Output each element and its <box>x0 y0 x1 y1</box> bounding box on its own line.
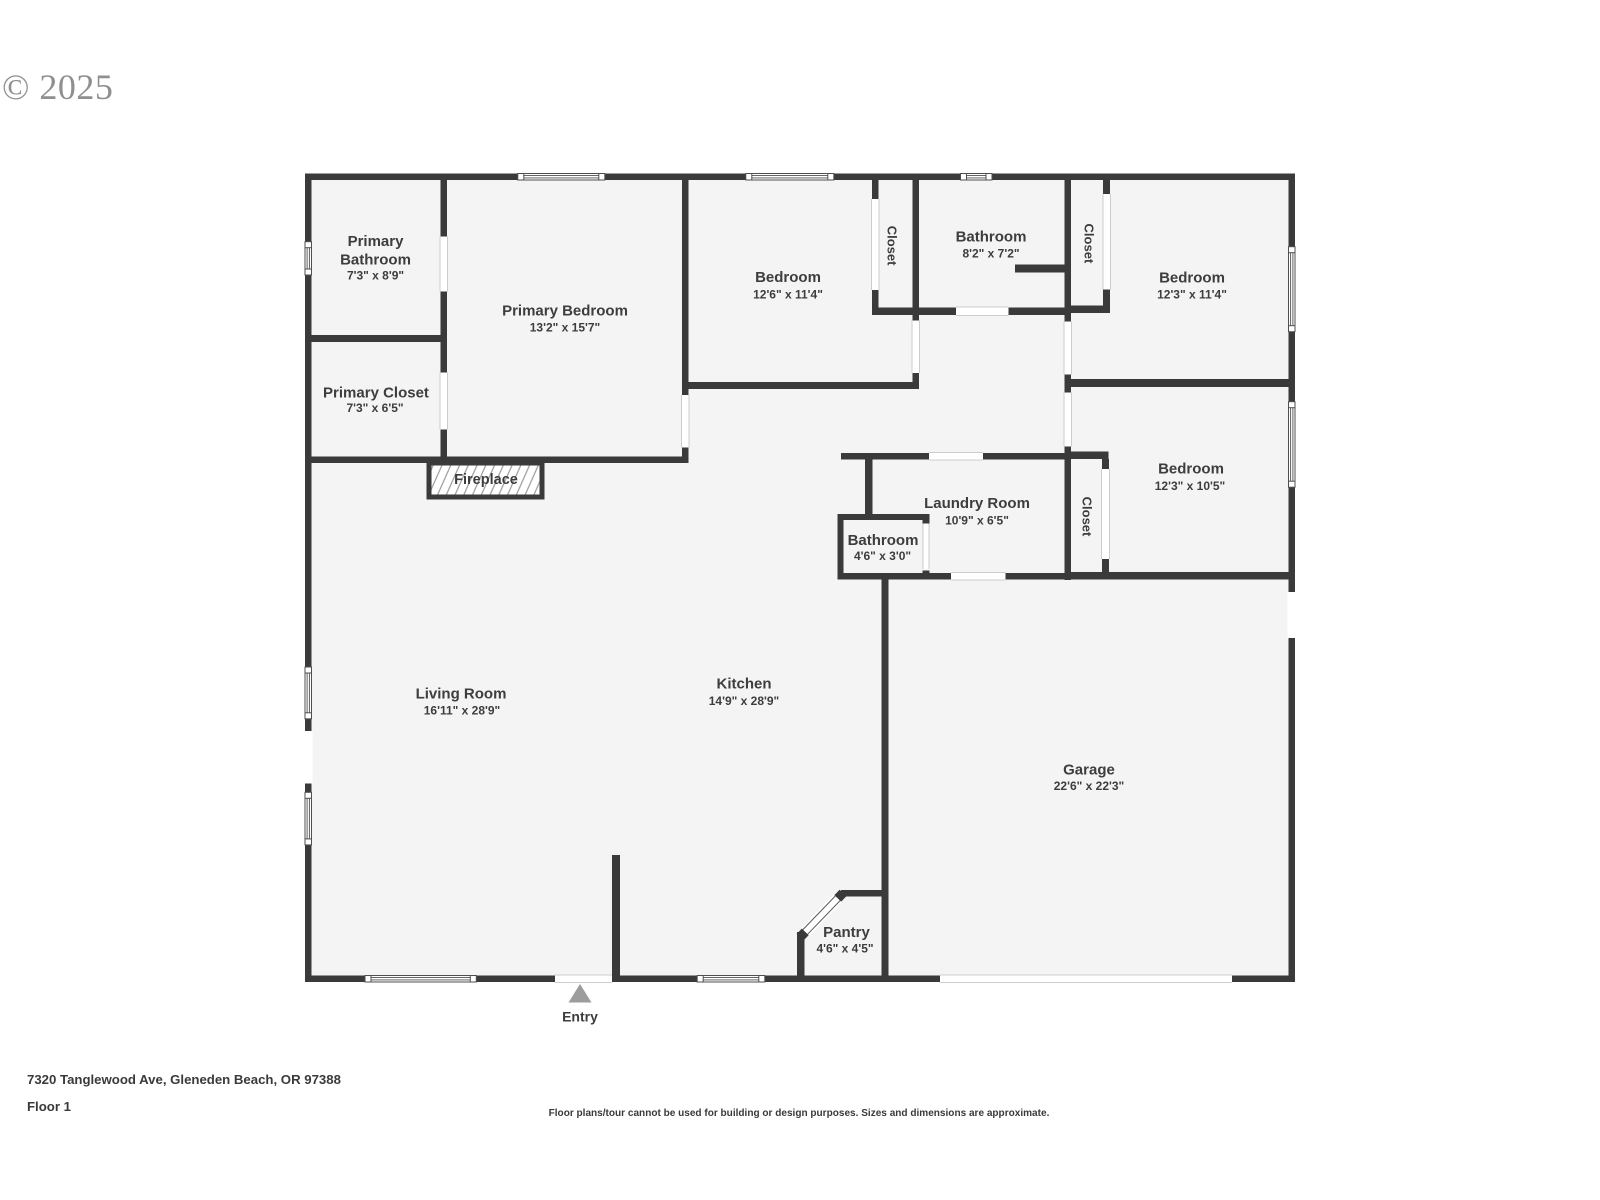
svg-text:22'6" x 22'3": 22'6" x 22'3" <box>1054 779 1124 793</box>
svg-text:Closet: Closet <box>1080 497 1095 537</box>
svg-text:Pantry: Pantry <box>823 924 870 941</box>
svg-text:Garage: Garage <box>1063 762 1115 779</box>
svg-text:Bathroom: Bathroom <box>956 229 1027 246</box>
svg-text:7'3" x 6'5": 7'3" x 6'5" <box>346 401 403 415</box>
svg-text:Closet: Closet <box>1082 224 1097 264</box>
svg-text:7'3" x 8'9": 7'3" x 8'9" <box>347 268 404 282</box>
svg-text:Living Room: Living Room <box>416 685 507 702</box>
svg-text:12'6" x 11'4": 12'6" x 11'4" <box>753 287 823 301</box>
svg-text:Bedroom: Bedroom <box>755 269 821 286</box>
svg-text:4'6" x 3'0": 4'6" x 3'0" <box>854 549 911 563</box>
svg-text:Floor 1: Floor 1 <box>27 1099 71 1114</box>
svg-text:Laundry Room: Laundry Room <box>924 495 1030 512</box>
svg-text:12'3" x 10'5": 12'3" x 10'5" <box>1155 479 1225 493</box>
svg-text:Primary Bedroom: Primary Bedroom <box>502 303 628 320</box>
svg-text:8'2" x 7'2": 8'2" x 7'2" <box>962 246 1019 260</box>
svg-text:Bathroom: Bathroom <box>848 532 919 549</box>
svg-text:Primary: Primary <box>348 233 405 250</box>
svg-text:Primary Closet: Primary Closet <box>323 384 429 401</box>
svg-text:Kitchen: Kitchen <box>716 676 771 693</box>
svg-text:10'9" x 6'5": 10'9" x 6'5" <box>945 514 1009 528</box>
svg-text:4'6" x 4'5": 4'6" x 4'5" <box>816 941 873 955</box>
svg-text:12'3" x 11'4": 12'3" x 11'4" <box>1157 287 1227 301</box>
svg-text:Bedroom: Bedroom <box>1158 461 1224 478</box>
svg-text:Closet: Closet <box>885 226 900 266</box>
svg-text:13'2" x 15'7": 13'2" x 15'7" <box>530 321 600 335</box>
svg-text:7320 Tanglewood Ave, Gleneden: 7320 Tanglewood Ave, Gleneden Beach, OR … <box>27 1072 341 1087</box>
svg-text:16'11" x 28'9": 16'11" x 28'9" <box>424 703 500 717</box>
svg-text:Floor plans/tour cannot be use: Floor plans/tour cannot be used for buil… <box>549 1108 1050 1119</box>
svg-text:Fireplace: Fireplace <box>454 472 518 488</box>
svg-text:Bedroom: Bedroom <box>1159 270 1225 287</box>
svg-text:14'9" x 28'9": 14'9" x 28'9" <box>709 694 779 708</box>
svg-text:Bathroom: Bathroom <box>340 252 411 269</box>
svg-text:Entry: Entry <box>562 1009 598 1025</box>
svg-text:© 2025: © 2025 <box>2 67 113 107</box>
